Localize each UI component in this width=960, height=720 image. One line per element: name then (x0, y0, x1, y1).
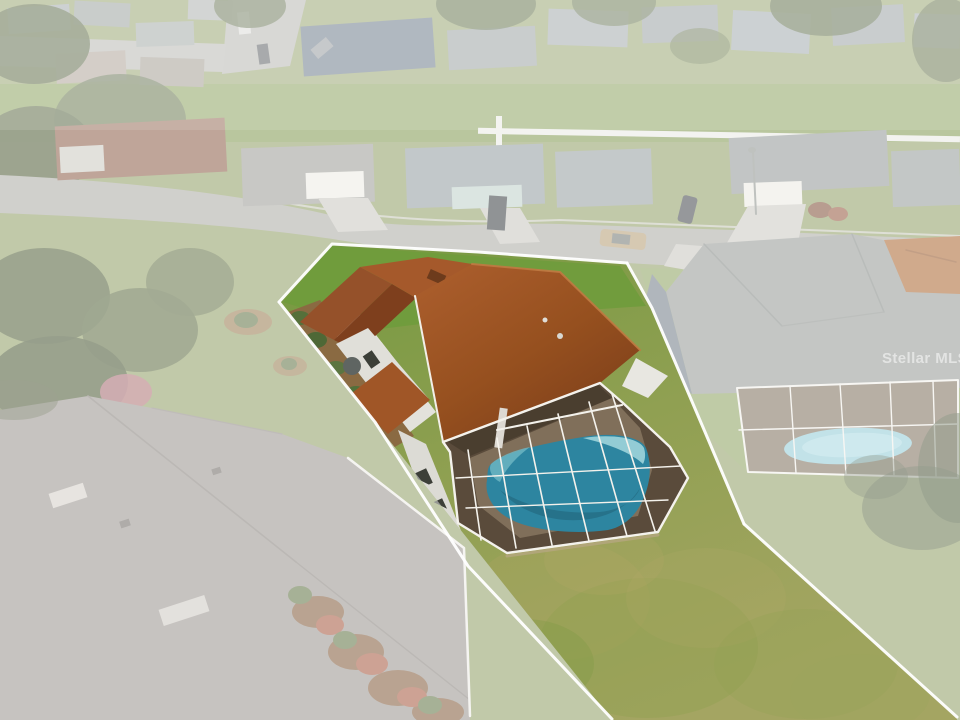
aerial-photo-svg (0, 0, 960, 720)
extra-haze-top (0, 0, 960, 130)
ac-unit-round (343, 357, 361, 375)
watermark: Stellar MLS (882, 350, 958, 367)
roof-vent-dot (543, 318, 548, 323)
roof-vent-dot (557, 333, 563, 339)
aerial-photo: Stellar MLS (0, 0, 960, 720)
